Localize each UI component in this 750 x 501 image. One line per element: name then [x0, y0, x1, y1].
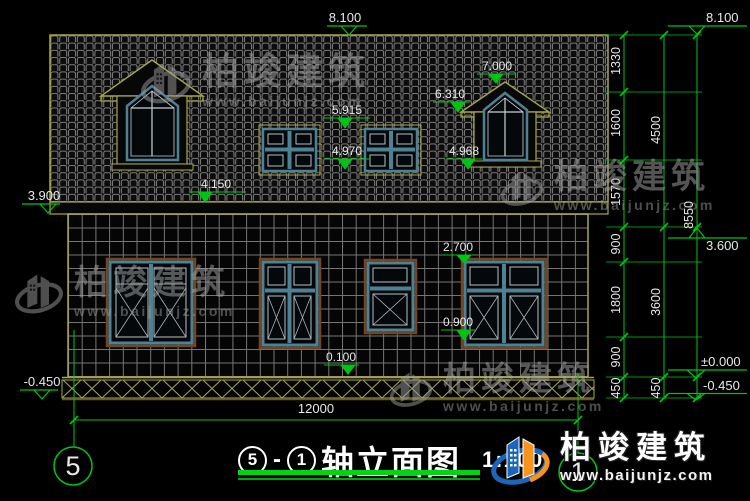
- attic-window-1: [259, 125, 320, 175]
- dormer-right-sill: [469, 161, 541, 167]
- title-underline-thin: [238, 478, 480, 480]
- window-1: [107, 259, 195, 346]
- level-ground-left: -0.450: [24, 374, 61, 389]
- level-eave-wall-top: 3.900: [28, 188, 61, 203]
- dim-900b: 900: [609, 347, 623, 368]
- dim-1600: 1600: [609, 109, 623, 137]
- dim-450a: 450: [609, 378, 623, 399]
- level-ridge: 8.100: [329, 10, 362, 25]
- level-floor2: 3.600: [706, 238, 739, 253]
- axis-bubble-5: 5: [65, 451, 80, 481]
- level-dormer-apex: 7.000: [482, 59, 512, 73]
- window-4: [462, 259, 546, 348]
- level-win-head: 2.700: [443, 240, 473, 254]
- plinth: [62, 378, 594, 400]
- elevation-drawing-canvas: 8.100 8.100 3.600 ±0.000 -0.450 3.900 -0…: [0, 0, 750, 501]
- title-underline-thick: [238, 470, 480, 475]
- dim-4500: 4500: [649, 116, 663, 144]
- dim-450b: 450: [649, 378, 663, 399]
- level-ground-right: -0.450: [703, 378, 740, 393]
- eave-fascia: [50, 202, 608, 214]
- dim-900a: 900: [609, 234, 623, 255]
- level-zero: ±0.000: [701, 354, 741, 369]
- dim-8550: 8550: [682, 201, 696, 229]
- level-dormer-eave: 6.310: [435, 87, 465, 101]
- company-logo-url: www.baijunjz.com: [560, 467, 713, 484]
- level-ridge-right: 8.100: [706, 10, 739, 25]
- dormer-left-sill: [112, 164, 193, 170]
- level-win-sill: 0.900: [443, 315, 473, 329]
- level-roof-eave: 4.150: [201, 177, 231, 191]
- level-attic-win-head: 5.915: [332, 103, 362, 117]
- title-name: 轴立面图: [321, 436, 461, 484]
- company-logo: 柏竣建筑 www.baijunjz.com: [490, 424, 713, 492]
- dim-1800: 1800: [609, 286, 623, 314]
- level-dormer-base: 4.968: [449, 144, 479, 158]
- company-logo-icon: [490, 424, 552, 492]
- level-plinth: 0.100: [326, 350, 356, 364]
- dim-1330: 1330: [609, 47, 623, 75]
- window-2: [260, 259, 320, 348]
- window-3: [365, 260, 416, 333]
- dim-3600: 3600: [649, 288, 663, 316]
- company-logo-brand: 柏竣建筑: [560, 432, 713, 463]
- dim-overall-width: 12000: [298, 401, 334, 416]
- chain-labels: 1330 1600 1570 900 1800 900 450 4500 360…: [609, 47, 696, 398]
- attic-window-2: [361, 125, 421, 175]
- dim-1570: 1570: [609, 178, 623, 206]
- level-attic-win-sill: 4.970: [332, 144, 362, 158]
